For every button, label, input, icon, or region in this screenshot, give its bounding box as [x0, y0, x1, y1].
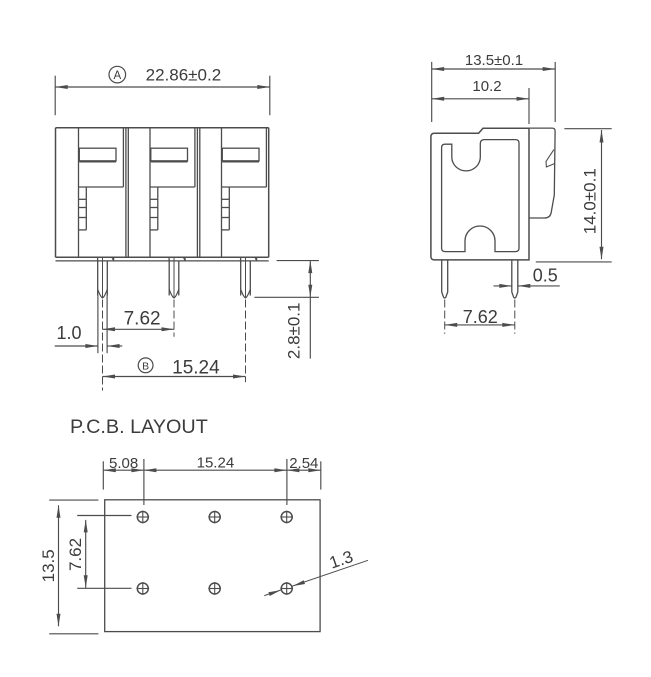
svg-text:14.0±0.1: 14.0±0.1 — [581, 168, 600, 234]
svg-text:7.62: 7.62 — [124, 308, 161, 329]
svg-text:P.C.B. LAYOUT: P.C.B. LAYOUT — [70, 416, 208, 438]
svg-text:2.8±0.1: 2.8±0.1 — [285, 302, 304, 359]
svg-text:13.5±0.1: 13.5±0.1 — [465, 52, 523, 69]
svg-text:A: A — [113, 70, 121, 82]
svg-text:13.5: 13.5 — [39, 549, 58, 582]
svg-text:B: B — [142, 361, 149, 373]
svg-text:5.08: 5.08 — [109, 455, 138, 472]
svg-text:22.86±0.2: 22.86±0.2 — [146, 66, 222, 85]
svg-text:10.2: 10.2 — [472, 78, 501, 95]
svg-text:15.24: 15.24 — [172, 357, 220, 378]
svg-text:1.0: 1.0 — [56, 323, 81, 343]
svg-text:15.24: 15.24 — [197, 454, 235, 471]
svg-text:7.62: 7.62 — [463, 307, 498, 327]
svg-text:0.5: 0.5 — [533, 265, 558, 285]
svg-text:7.62: 7.62 — [66, 538, 85, 571]
svg-text:2.54: 2.54 — [289, 455, 318, 472]
